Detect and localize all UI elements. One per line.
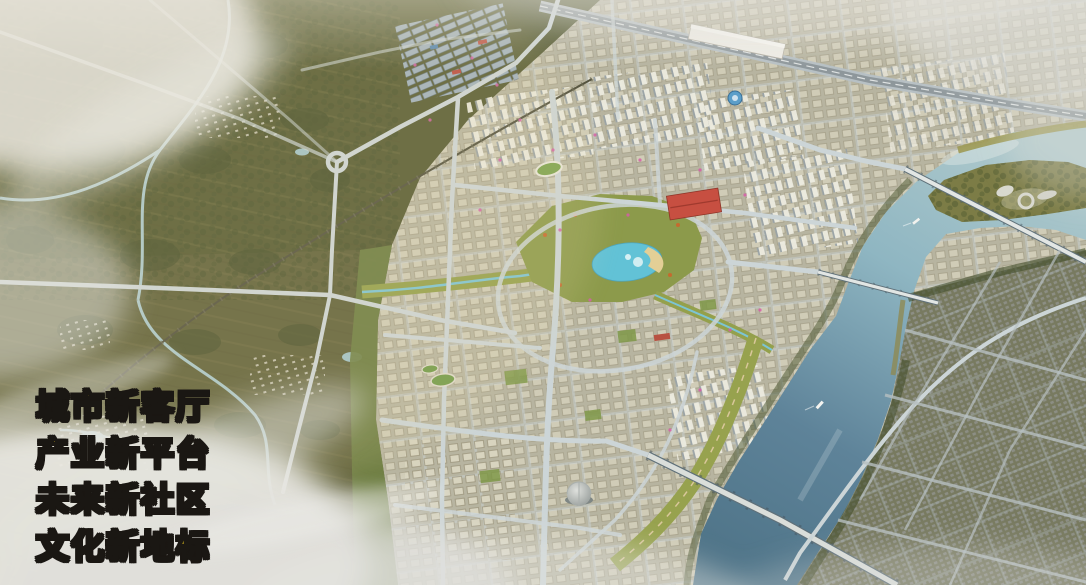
slogan-line-4: 文化新地标 (36, 524, 211, 571)
aerial-city-render: 城市新客厅 产业新平台 未来新社区 文化新地标 (0, 0, 1086, 585)
blue-disc-building (728, 91, 742, 105)
slogan-line-3: 未来新社区 (36, 477, 211, 524)
slogan-line-2: 产业新平台 (36, 431, 211, 478)
slogan-overlay: 城市新客厅 产业新平台 未来新社区 文化新地标 (36, 384, 211, 570)
slogan-line-1: 城市新客厅 (36, 384, 211, 431)
